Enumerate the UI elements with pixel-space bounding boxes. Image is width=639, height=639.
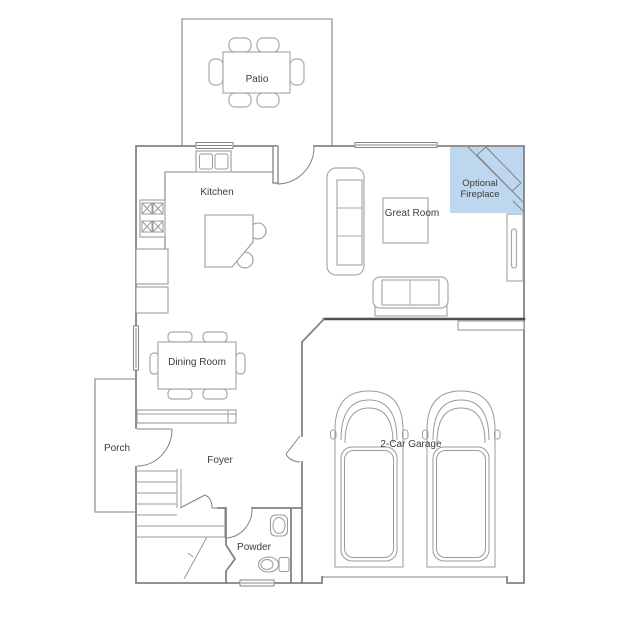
dining-room [137, 332, 245, 423]
front-door [137, 429, 172, 466]
powder-label: Powder [237, 542, 272, 553]
patio-table [223, 52, 290, 93]
tv [512, 229, 517, 268]
car-left [331, 391, 409, 567]
kitchen-door-arc [277, 147, 314, 184]
stairs [136, 469, 226, 579]
foyer-label: Foyer [207, 455, 233, 466]
car-right [423, 391, 501, 567]
kitchen-label: Kitchen [200, 187, 233, 198]
stair-treads [136, 471, 177, 515]
garage-label: 2-Car Garage [380, 439, 442, 450]
sofa-left-cushions [337, 180, 362, 265]
stair-direction-arrow [184, 537, 207, 579]
stair-stringer [177, 469, 181, 508]
floor-plan-svg: Patio Kitchen Great Room Optional Firepl… [0, 0, 639, 639]
powder-door [225, 509, 252, 538]
optional-fireplace-label-line2: Fireplace [460, 189, 499, 200]
garage-west-wall [302, 319, 324, 583]
pantry-cabinet [136, 287, 168, 313]
dining-room-label: Dining Room [168, 357, 226, 368]
coffee-table [383, 198, 428, 243]
garage-entry-door [286, 436, 300, 462]
floor-plan-page: Patio Kitchen Great Room Optional Firepl… [0, 0, 639, 639]
kitchen [136, 151, 273, 313]
porch-label: Porch [104, 443, 130, 454]
kitchen-wall-stub [273, 146, 278, 183]
toilet-tank [279, 558, 289, 572]
garage-shelf [458, 321, 524, 330]
refrigerator [136, 249, 168, 284]
optional-fireplace-label-line1: Optional [462, 178, 497, 189]
entry-half-wall [137, 410, 236, 423]
patio-label: Patio [246, 74, 269, 85]
stair-landing [136, 526, 226, 537]
great-room-label: Great Room [385, 208, 439, 219]
closet-door [180, 495, 226, 508]
